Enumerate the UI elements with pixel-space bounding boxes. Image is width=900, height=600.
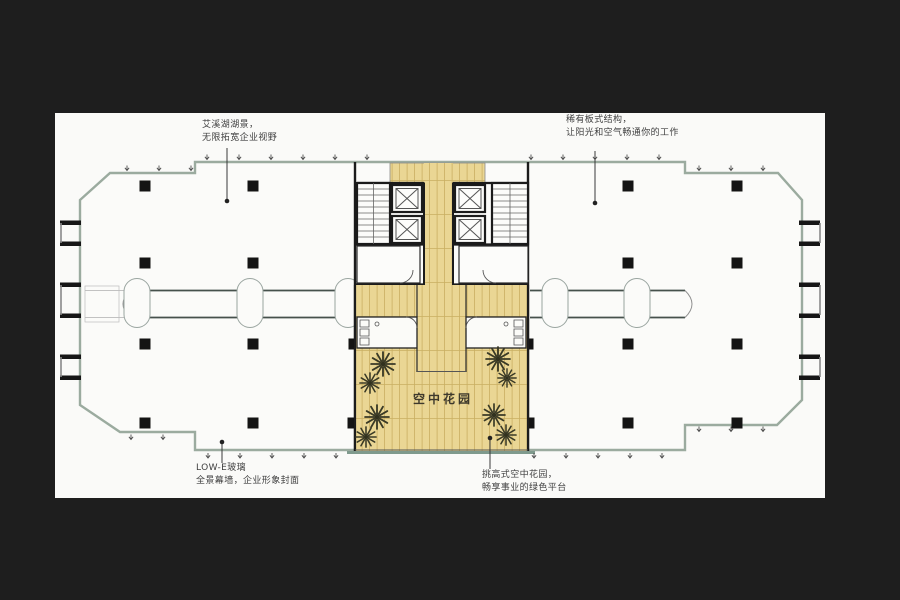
- column: [140, 418, 151, 429]
- column: [732, 181, 743, 192]
- column: [140, 181, 151, 192]
- stair-right: [492, 183, 528, 244]
- mullion-tick-icon: [333, 155, 337, 160]
- column: [140, 339, 151, 350]
- column: [248, 181, 259, 192]
- mullion-tick-icon: [365, 155, 369, 160]
- annotation-top-left: 艾溪湖湖景， 无限拓宽企业视野: [202, 119, 277, 144]
- mullion-tick-icon: [189, 166, 193, 171]
- mullion-tick-icon: [729, 166, 733, 171]
- elevator-icon: [392, 216, 422, 243]
- sky-garden: [347, 285, 535, 453]
- mullion-tick-icon: [334, 453, 338, 458]
- mullion-tick-icon: [270, 453, 274, 458]
- mullion-tick-icon: [625, 155, 629, 160]
- mullion-tick-icon: [157, 166, 161, 171]
- floorplan-drawing: [55, 113, 825, 498]
- annotation-bottom-right: 挑高式空中花园， 畅享事业的绿色平台: [482, 469, 567, 494]
- annotation-line: 让阳光和空气畅通你的工作: [566, 127, 679, 140]
- mullion-tick-icon: [596, 453, 600, 458]
- floorplan-canvas: 艾溪湖湖景， 无限拓宽企业视野 稀有板式结构， 让阳光和空气畅通你的工作 LOW…: [55, 113, 825, 498]
- sky-garden-label: 空中花园: [413, 390, 473, 407]
- mullion-tick-icon: [564, 453, 568, 458]
- mullion-tick-icon: [129, 435, 133, 440]
- column: [248, 339, 259, 350]
- left-facade-bays: [60, 221, 81, 381]
- annotation-line: 挑高式空中花园，: [482, 469, 567, 482]
- mullion-tick-icon: [161, 435, 165, 440]
- mullion-tick-icon: [657, 155, 661, 160]
- mullion-tick-icon: [628, 453, 632, 458]
- mullion-tick-icon: [237, 155, 241, 160]
- column: [623, 418, 634, 429]
- core-corridor: [424, 163, 453, 285]
- mullion-tick-icon: [761, 427, 765, 432]
- mullion-tick-icon: [529, 155, 533, 160]
- mullion-tick-icon: [561, 155, 565, 160]
- mullion-tick-icon: [205, 155, 209, 160]
- partition-opening: [237, 279, 263, 328]
- mullion-tick-icon: [125, 166, 129, 171]
- mullion-tick-icon: [660, 453, 664, 458]
- column: [623, 339, 634, 350]
- column: [248, 258, 259, 269]
- column: [623, 181, 634, 192]
- elevator-icon: [455, 216, 485, 243]
- mullion-tick-icon: [238, 453, 242, 458]
- mullion-tick-icon: [301, 155, 305, 160]
- annotation-line: 稀有板式结构，: [566, 114, 679, 127]
- mullion-tick-icon: [302, 453, 306, 458]
- partition-opening: [624, 279, 650, 328]
- annotation-line: 畅享事业的绿色平台: [482, 482, 567, 495]
- stair-left: [357, 183, 390, 244]
- mullion-tick-icon: [269, 155, 273, 160]
- annotation-bottom-left: LOW-E玻璃 全景幕墙，企业形象封面: [196, 462, 299, 487]
- mullion-tick-icon: [697, 166, 701, 171]
- column: [140, 258, 151, 269]
- annotation-line: 全景幕墙，企业形象封面: [196, 475, 299, 488]
- garden-room-right: [466, 317, 526, 348]
- mullion-tick-icon: [697, 427, 701, 432]
- annotation-line: 艾溪湖湖景，: [202, 119, 277, 132]
- elevator-icon: [455, 185, 485, 212]
- image-background: 艾溪湖湖景， 无限拓宽企业视野 稀有板式结构， 让阳光和空气畅通你的工作 LOW…: [0, 0, 900, 600]
- annotation-line: LOW-E玻璃: [196, 462, 299, 475]
- column: [623, 258, 634, 269]
- mullion-tick-icon: [206, 453, 210, 458]
- column: [248, 418, 259, 429]
- mullion-tick-icon: [761, 166, 765, 171]
- elevator-icon: [392, 185, 422, 212]
- column: [732, 339, 743, 350]
- annotation-top-right: 稀有板式结构， 让阳光和空气畅通你的工作: [566, 114, 679, 139]
- partition-opening: [542, 279, 568, 328]
- garden-room-left: [357, 317, 417, 348]
- column: [732, 258, 743, 269]
- annotation-line: 无限拓宽企业视野: [202, 132, 277, 145]
- column: [732, 418, 743, 429]
- partition-opening: [124, 279, 150, 328]
